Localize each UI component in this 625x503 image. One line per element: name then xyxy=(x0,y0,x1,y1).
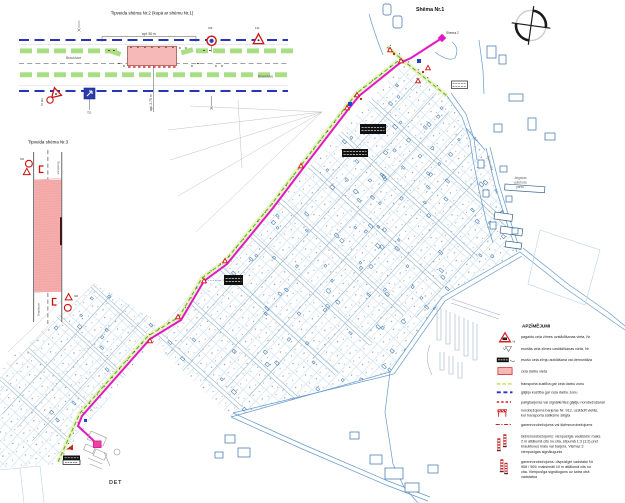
svg-text:esošo ceļa zīmju aizklāšana va: esošo ceļa zīmju aizklāšana vai demontāž… xyxy=(521,358,593,362)
svg-text:142: 142 xyxy=(255,26,260,30)
svg-text:norobežojuma barjeras Nr. 912,: norobežojuma barjeras Nr. 912, uzstādīt … xyxy=(521,409,598,413)
svg-text:Tipveida shēma Nr.2 (kopā ar s: Tipveida shēma Nr.2 (kopā ar shēmu Nr.1) xyxy=(111,11,194,16)
svg-text:cita. Vienpusīga signāluguns u: cita. Vienpusīga signāluguns uz katra ot… xyxy=(521,470,590,474)
svg-text:vienpusīgas signālugunis: vienpusīgas signālugunis xyxy=(521,450,562,454)
svg-text:pagaidu ceļa zīmes uzstādīšana: pagaidu ceļa zīmes uzstādīšanas vieta, N… xyxy=(521,335,591,339)
svg-text:apt. 50 m: apt. 50 m xyxy=(142,32,156,36)
svg-text:Shema 2: Shema 2 xyxy=(446,31,459,35)
svg-text:palīgbarjeras vai signāllentes: palīgbarjeras vai signāllentes gājēju no… xyxy=(521,400,605,404)
svg-text:Shēma Nr.1: Shēma Nr.1 xyxy=(416,7,444,13)
svg-text:gājēju kustība gar ceļa darbu: gājēju kustība gar ceļa darbu zonu xyxy=(521,391,577,395)
svg-text:garennorobežojums vai šķērsnor: garennorobežojums vai šķērsnorobežojums xyxy=(521,423,592,427)
svg-text:garennorobežojums: divpusīgie: garennorobežojums: divpusīgie vadstatņi … xyxy=(521,460,594,464)
svg-text:Brauktuve: Brauktuve xyxy=(66,56,81,60)
svg-text:Jelgavas: Jelgavas xyxy=(514,176,527,180)
svg-text:Nr 142: Nr 142 xyxy=(40,98,44,106)
svg-text:APZĪMĒJUMI: APZĪMĒJUMI xyxy=(522,323,550,329)
svg-text:326: 326 xyxy=(208,26,213,30)
svg-text:apt. 2.75 m: apt. 2.75 m xyxy=(149,94,153,111)
svg-text:326: 326 xyxy=(20,158,25,161)
svg-text:parks: parks xyxy=(516,185,524,189)
svg-text:908 / 909; maksimāli 10 m attā: 908 / 909; maksimāli 10 m attālumā cits … xyxy=(521,465,591,469)
svg-text:DET: DET xyxy=(109,480,122,486)
svg-text:vadstatņa: vadstatņa xyxy=(521,475,538,479)
svg-text:751: 751 xyxy=(87,111,92,115)
svg-text:Nr: Nr xyxy=(513,340,516,344)
svg-text:brauktuves malu vai barjera. V: brauktuves malu vai barjera. Vismaz 3 xyxy=(521,445,583,449)
svg-text:Brauktuve: Brauktuve xyxy=(57,162,61,175)
svg-text:šķērsnorobežojums: vienpusīgie: šķērsnorobežojums: vienpusīgie vadstatņi… xyxy=(521,435,601,439)
svg-text:transporta kustība gar ceļa da: transporta kustība gar ceļa darbu zonu xyxy=(521,382,584,386)
svg-text:Tipveida shēma Nr.3: Tipveida shēma Nr.3 xyxy=(28,140,69,145)
svg-text:Brauktuve: Brauktuve xyxy=(258,75,273,79)
svg-text:Brauktuve: Brauktuve xyxy=(37,303,41,316)
svg-text:326: 326 xyxy=(74,295,79,298)
svg-text:ceļa darbu vieta: ceļa darbu vieta xyxy=(521,370,548,374)
svg-text:esošās ceļa zīmes uzstādīšanas: esošās ceļa zīmes uzstādīšanas vieta, Nr xyxy=(521,347,590,351)
svg-text:kur transporta satiksme slēgta: kur transporta satiksme slēgta xyxy=(521,414,571,418)
svg-text:autobusu: autobusu xyxy=(514,181,527,185)
svg-text:2 m attālumā cits no cita, slī: 2 m attālumā cits no cita, slīpumā 1:3 (… xyxy=(521,440,598,444)
